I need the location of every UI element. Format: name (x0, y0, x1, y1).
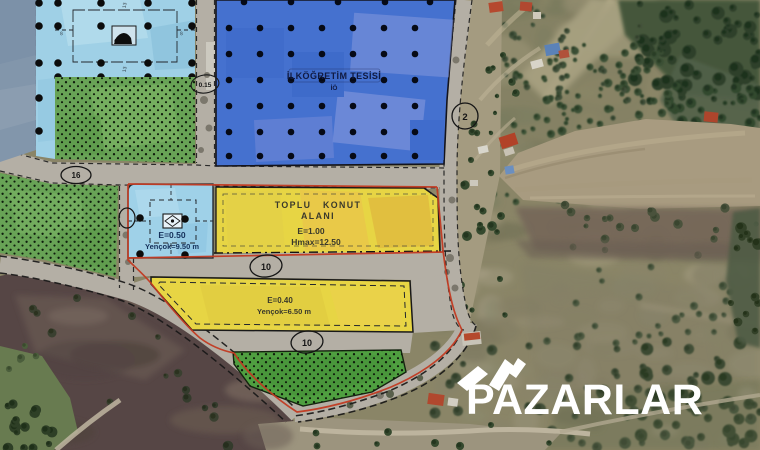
svg-text:Hmax=12.50: Hmax=12.50 (291, 237, 341, 247)
svg-text:10: 10 (302, 338, 312, 348)
svg-text:PAZARLAR: PAZARLAR (466, 376, 703, 424)
svg-text:E=0.40: E=0.40 (267, 296, 293, 305)
svg-text:İLKÖĞRETİM TESİSİ: İLKÖĞRETİM TESİSİ (287, 70, 381, 81)
svg-text:ALANI: ALANI (301, 211, 335, 221)
svg-text:0.15: 0.15 (199, 82, 212, 89)
svg-text:E=0.50: E=0.50 (158, 230, 185, 240)
svg-text:16: 16 (72, 171, 81, 180)
svg-text:TOPLU KONUT: TOPLU KONUT (275, 200, 362, 210)
svg-text:10: 10 (261, 262, 271, 272)
svg-text:2: 2 (462, 112, 467, 123)
svg-text:Yençok=6.50 m: Yençok=6.50 m (257, 307, 311, 316)
svg-text:E=1.00: E=1.00 (297, 226, 324, 236)
svg-text:İÖ: İÖ (331, 83, 338, 92)
svg-text:Yençok=9.50 m: Yençok=9.50 m (145, 242, 199, 251)
